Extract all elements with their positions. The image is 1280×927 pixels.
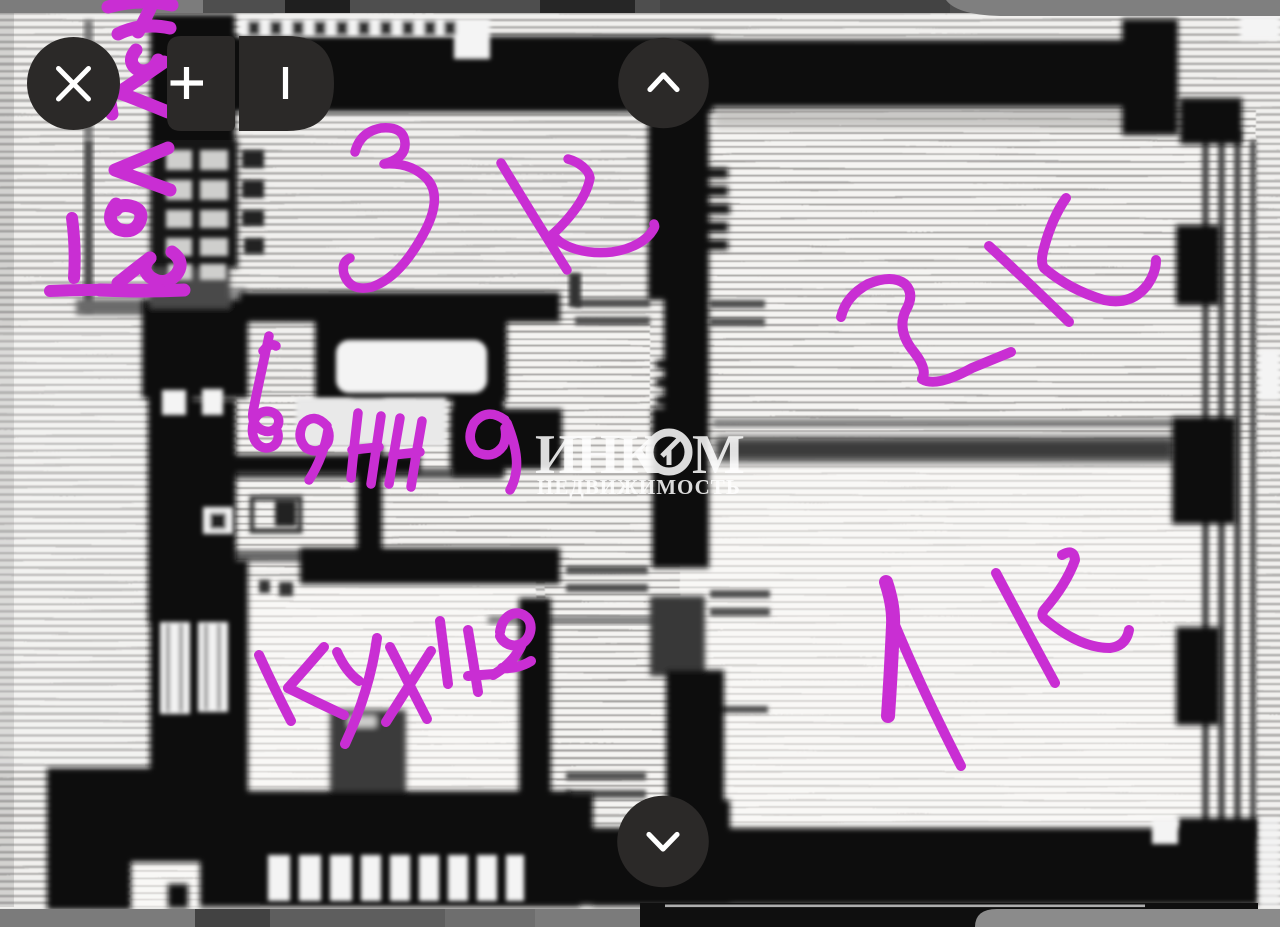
svg-text:НЕДВИЖИМОСТЬ: НЕДВИЖИМОСТЬ — [537, 475, 741, 499]
